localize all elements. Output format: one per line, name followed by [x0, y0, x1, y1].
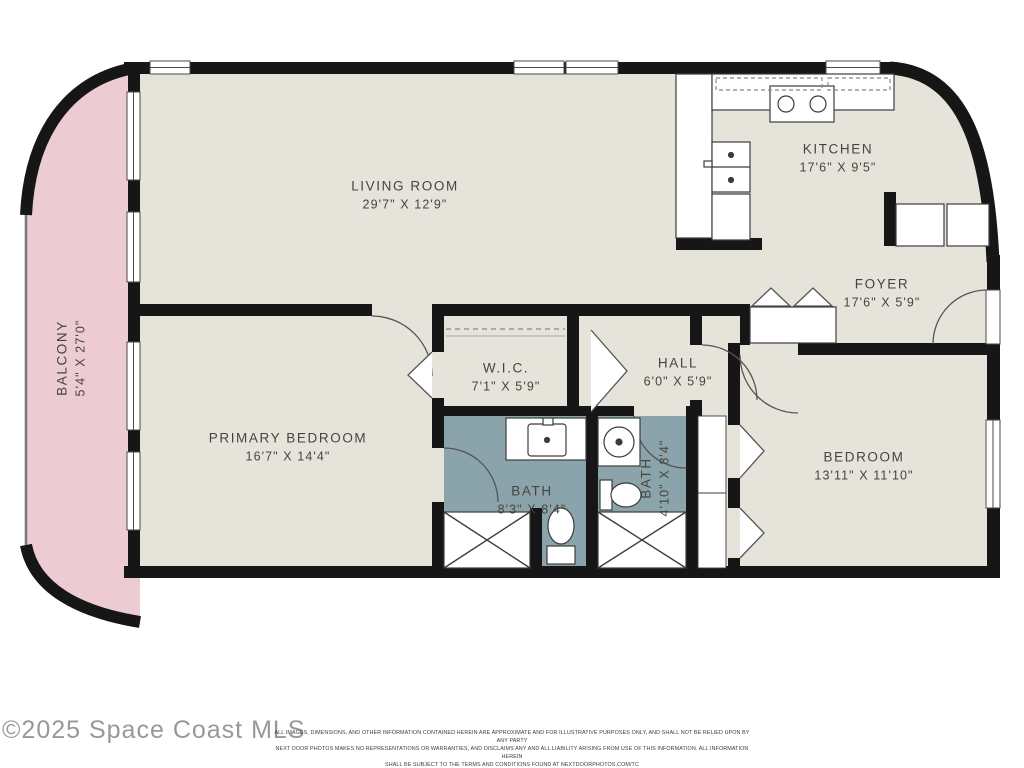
- floorplan-page: LIVING ROOM 29'7" X 12'9" KITCHEN 17'6" …: [0, 0, 1024, 768]
- bath-hall-toilet: [611, 483, 641, 507]
- disclaimer-text: ALL IMAGES, DIMENSIONS, AND OTHER INFORM…: [272, 729, 752, 768]
- disclaimer-line-2: NEXT DOOR PHOTOS MAKES NO REPRESENTATION…: [272, 745, 752, 761]
- foyer-pantry-2: [947, 204, 989, 246]
- kitchen-counter-left: [676, 74, 712, 238]
- foyer-pantry-1: [896, 204, 944, 246]
- bath-hall-toilet-tank: [600, 480, 612, 510]
- disclaimer-line-1: ALL IMAGES, DIMENSIONS, AND OTHER INFORM…: [272, 729, 752, 745]
- refrigerator-handle: [704, 161, 712, 167]
- bath-primary-toilet: [548, 508, 574, 544]
- disclaimer-line-3: SHALL BE SUBJECT TO THE TERMS AND CONDIT…: [272, 761, 752, 768]
- bedroom-closet-strip: [698, 416, 726, 568]
- floorplan-drawing: [0, 0, 1024, 768]
- foyer-closet: [750, 307, 836, 343]
- kitchen-cabinet: [712, 194, 750, 240]
- copyright-text: ©2025 Space Coast MLS: [2, 716, 305, 745]
